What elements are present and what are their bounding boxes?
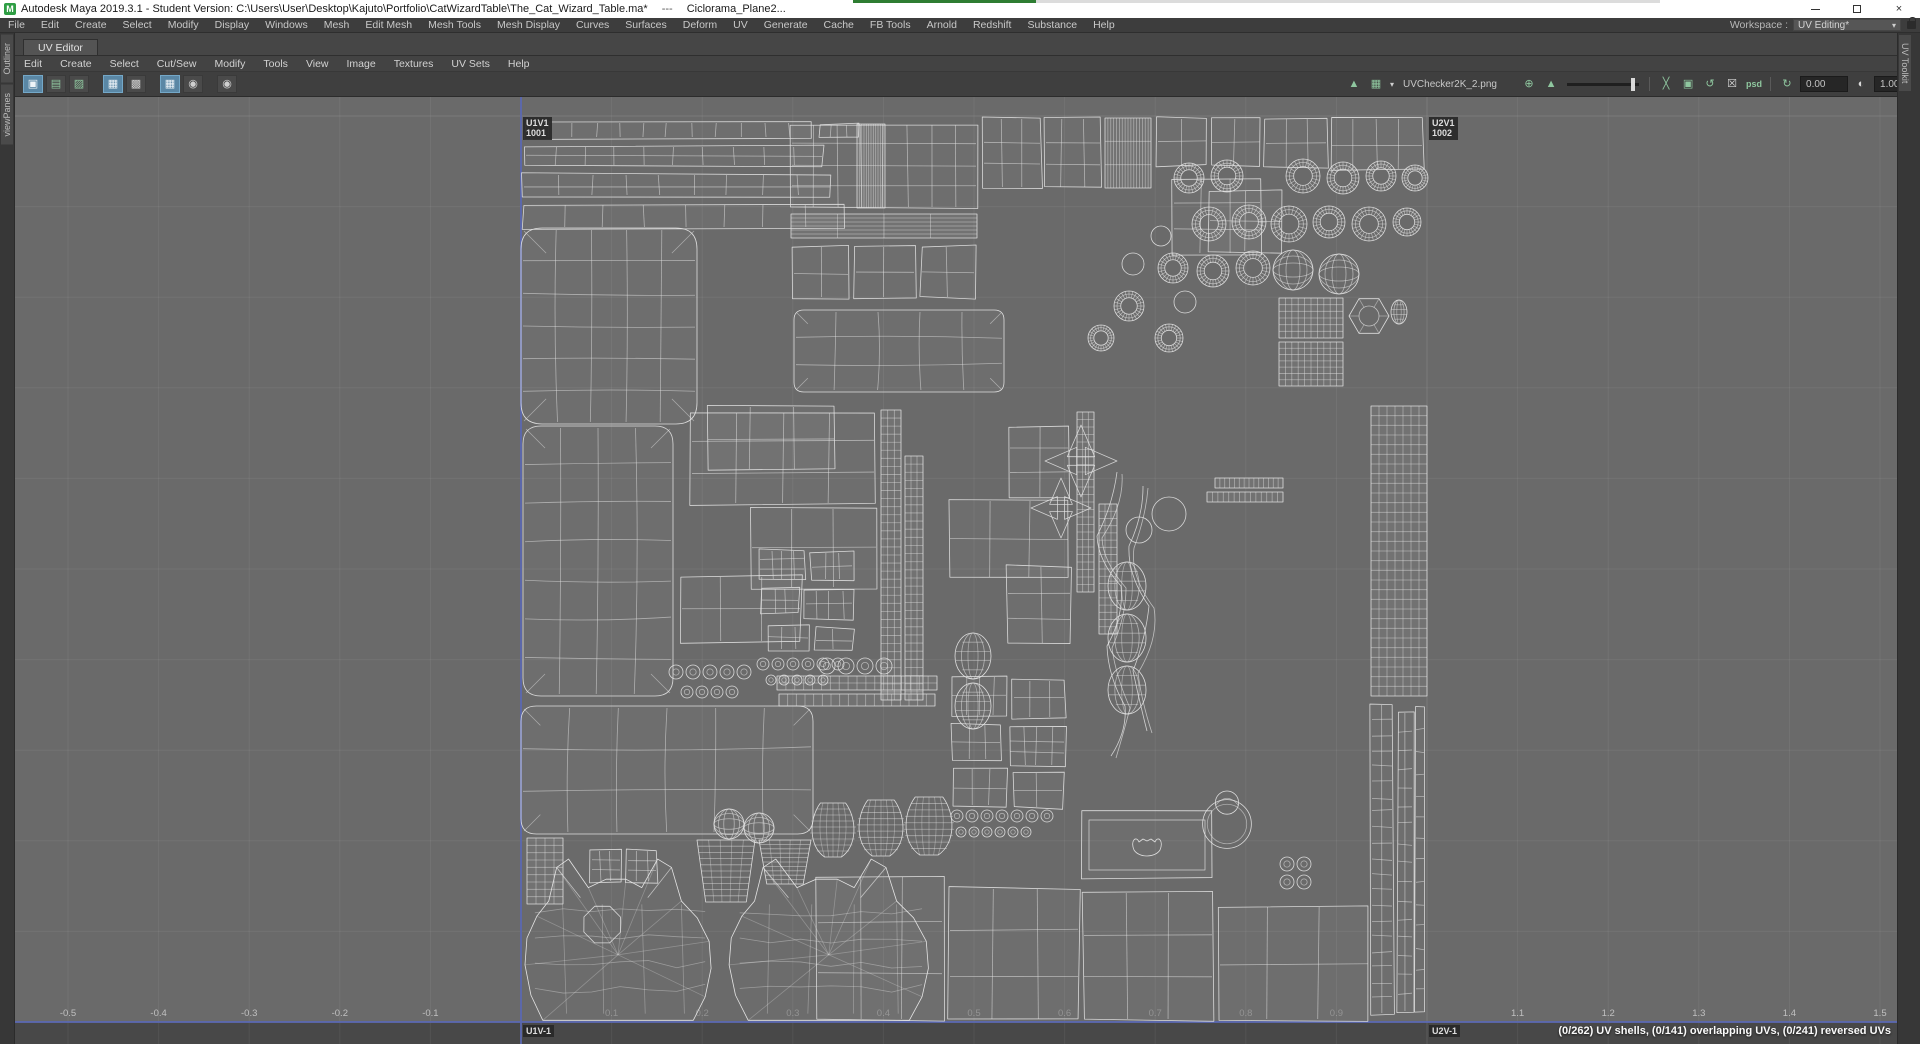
shader-ball-icon[interactable]: ⊕	[1520, 75, 1538, 93]
uv-menu-image[interactable]: Image	[338, 58, 385, 70]
menu-substance[interactable]: Substance	[1019, 19, 1085, 31]
window-controls: ×	[1794, 0, 1920, 18]
checker-tiles-icon[interactable]: ▦	[160, 75, 180, 93]
expand-image-icon[interactable]: ╳	[1657, 75, 1675, 93]
image-ratio-icon[interactable]: ▲	[1542, 75, 1560, 93]
menu-surfaces[interactable]: Surfaces	[617, 19, 674, 31]
uv-menu-view[interactable]: View	[297, 58, 338, 70]
menu-file[interactable]: File	[0, 19, 33, 31]
menu-redshift[interactable]: Redshift	[965, 19, 1020, 31]
menu-deform[interactable]: Deform	[675, 19, 725, 31]
menu-generate[interactable]: Generate	[756, 19, 816, 31]
progress-bar-fill	[853, 0, 1036, 3]
uv-menu-help[interactable]: Help	[499, 58, 539, 70]
menu-mesh-tools[interactable]: Mesh Tools	[420, 19, 489, 31]
left-panel-strip: Outliner viewPanes	[0, 33, 15, 1044]
main-menu-items: FileEditCreateSelectModifyDisplayWindows…	[0, 19, 1123, 31]
menu-curves[interactable]: Curves	[568, 19, 617, 31]
menu-display[interactable]: Display	[207, 19, 257, 31]
exposure-field[interactable]: 0.00	[1800, 76, 1848, 92]
minimize-button[interactable]	[1794, 0, 1836, 18]
uv-editor-toolbar: ▣▤▨▦▩▦◉◉ ▲ ▦ ▾ UVChecker2K_2.png ⊕ ▲ ╳ ▣…	[15, 72, 1897, 97]
contrast-icon[interactable]: ◐	[1852, 75, 1870, 93]
menu-modify[interactable]: Modify	[160, 19, 207, 31]
refresh-icon[interactable]: ↻	[1778, 75, 1796, 93]
tab-outliner[interactable]: Outliner	[1, 35, 13, 83]
menu-windows[interactable]: Windows	[257, 19, 316, 31]
copy-uvs-icon[interactable]: ▤	[46, 75, 66, 93]
uv-status-readout: (0/262) UV shells, (0/141) overlapping U…	[1558, 1025, 1891, 1037]
maximize-button[interactable]	[1836, 0, 1878, 18]
progress-bar-track	[1036, 0, 1660, 3]
udim-label-u2v1: U2V11002	[1429, 117, 1458, 140]
uv-menu-tools[interactable]: Tools	[254, 58, 297, 70]
slider-handle[interactable]	[1631, 78, 1635, 91]
maximize-icon	[1853, 5, 1861, 13]
window-title: Autodesk Maya 2019.3.1 - Student Version…	[21, 3, 786, 15]
menu-select[interactable]: Select	[115, 19, 160, 31]
main-menu-bar: FileEditCreateSelectModifyDisplayWindows…	[0, 18, 1920, 33]
uv-toolbar-right: ▲ ▦ ▾ UVChecker2K_2.png ⊕ ▲ ╳ ▣ ↺ ☒ psd …	[1345, 75, 1920, 93]
uv-menu-textures[interactable]: Textures	[385, 58, 443, 70]
menu-create[interactable]: Create	[67, 19, 115, 31]
uv-snapshot-icon[interactable]: ◉	[217, 75, 237, 93]
lock-icon[interactable]	[1907, 21, 1916, 29]
workspace-label: Workspace :	[1730, 19, 1788, 31]
uv-menu-uv-sets[interactable]: UV Sets	[442, 58, 499, 70]
reload-image-icon[interactable]: ↺	[1701, 75, 1719, 93]
shaded-uv-display-icon[interactable]: ▩	[126, 75, 146, 93]
texture-file-name[interactable]: UVChecker2K_2.png	[1398, 76, 1516, 92]
uv-menu-select[interactable]: Select	[101, 58, 148, 70]
pixel-snap-icon[interactable]: ☒	[1723, 75, 1741, 93]
frame-image-icon[interactable]: ▣	[1679, 75, 1697, 93]
menu-mesh-display[interactable]: Mesh Display	[489, 19, 568, 31]
uv-menu-cut-sew[interactable]: Cut/Sew	[148, 58, 206, 70]
texture-borders-icon[interactable]: ▦	[103, 75, 123, 93]
minimize-icon	[1811, 9, 1820, 10]
chevron-down-icon[interactable]: ▾	[1390, 80, 1394, 89]
tab-uv-toolkit[interactable]: UV Toolkit	[1899, 35, 1911, 91]
update-psd-icon[interactable]: psd	[1745, 75, 1763, 93]
workspace-block: Workspace : UV Editing* ▾	[1730, 19, 1920, 31]
tab-viewpanes[interactable]: viewPanes	[1, 85, 13, 145]
separator	[1770, 77, 1771, 91]
uv-editor-menu-bar: EditCreateSelectCut/SewModifyToolsViewIm…	[15, 56, 1897, 72]
menu-cache[interactable]: Cache	[816, 19, 862, 31]
panel-tab-row: UV Editor	[15, 33, 1897, 56]
uv-menu-create[interactable]: Create	[51, 58, 101, 70]
udim-label-u2v-1: U2V-1	[1429, 1025, 1460, 1037]
close-icon: ×	[1896, 4, 1902, 15]
image-display-icon[interactable]: ▲	[1345, 75, 1363, 93]
menu-edit[interactable]: Edit	[33, 19, 67, 31]
udim-label-u1v-1: U1V-1	[523, 1025, 554, 1037]
menu-edit-mesh[interactable]: Edit Mesh	[357, 19, 420, 31]
uv-mesh	[15, 97, 1897, 1044]
menu-mesh[interactable]: Mesh	[316, 19, 358, 31]
close-button[interactable]: ×	[1878, 0, 1920, 18]
dim-image-icon[interactable]: ◉	[183, 75, 203, 93]
menu-arnold[interactable]: Arnold	[919, 19, 965, 31]
chevron-down-icon: ▾	[1892, 21, 1896, 30]
image-dim-slider[interactable]	[1567, 83, 1639, 86]
uv-menu-edit[interactable]: Edit	[15, 58, 51, 70]
uv-toolbar-left: ▣▤▨▦▩▦◉◉	[23, 75, 237, 93]
menu-uv[interactable]: UV	[725, 19, 756, 31]
workspace-select[interactable]: UV Editing* ▾	[1793, 19, 1901, 31]
maya-logo-icon: M	[4, 3, 16, 15]
checker-map-icon[interactable]: ▦	[1367, 75, 1385, 93]
workspace-value: UV Editing*	[1798, 20, 1849, 31]
uv-menu-modify[interactable]: Modify	[205, 58, 254, 70]
menu-help[interactable]: Help	[1085, 19, 1123, 31]
menu-fb-tools[interactable]: FB Tools	[862, 19, 919, 31]
right-panel-strip: UV Toolkit	[1897, 33, 1920, 1044]
udim-label-u1v1: U1V11001	[523, 117, 552, 140]
paste-uvs-icon[interactable]: ▨	[69, 75, 89, 93]
uv-shell-select-icon[interactable]: ▣	[23, 75, 43, 93]
tab-uv-editor[interactable]: UV Editor	[23, 39, 98, 55]
uv-editor-canvas[interactable]: U1V11001U2V11002U1V-1U2V-1 -0.5-0.4-0.3-…	[15, 97, 1897, 1044]
separator	[1649, 77, 1650, 91]
